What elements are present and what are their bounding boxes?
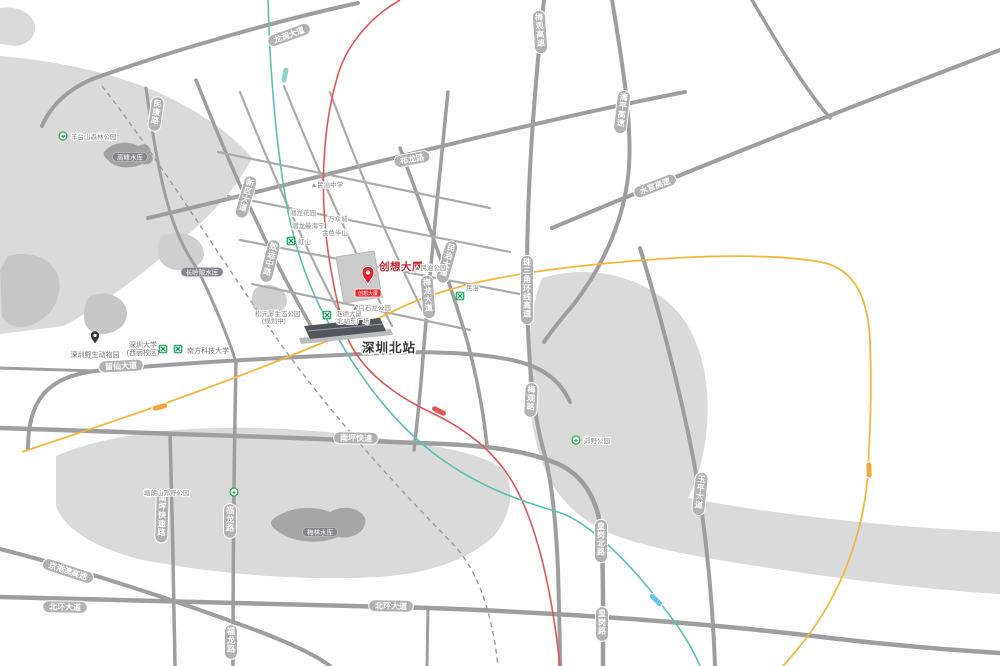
road-label-capsule: 福龙路 [224,504,237,539]
road-label-capsule: 福龙路 [225,625,238,660]
svg-text:深圳野生动物园: 深圳野生动物园 [71,350,120,359]
road-label-capsule: 皇岗北路 [595,519,608,562]
water-label-capsule: 长岭陂水库 [181,267,223,276]
place-label: (西丽校区) [127,348,160,357]
road-label-capsule: 京港澳高速 [41,557,95,585]
location-map: 深圳北站 创想大厦 龙澜大道布龙路清平高速水官高速珠三角环线高速梅观高速梅观路南… [0,0,1000,666]
water-label-capsule: 高峰水库 [112,152,147,161]
water-label-capsule: 梅林水库 [302,527,337,536]
metro-station-icon [174,345,182,353]
svg-text:♣: ♣ [574,438,578,444]
place-label: 南方科技大学 [187,346,229,355]
area-tanglang-mountain [56,428,510,578]
park-poi: ♣郊野公园 [572,436,610,445]
svg-text:汇德大厦: 汇德大厦 [336,309,363,318]
minor-street [218,152,490,208]
place-label: 深圳大学 [129,340,157,349]
metro-station-icon [159,345,167,353]
road-label-capsule: 珠三角环线高速 [521,255,534,324]
svg-text:珠三角环线高速: 珠三角环线高速 [523,257,532,319]
poi-label: 汇德大厦 [336,309,363,318]
road-label-capsule: 皇岗路 [596,607,609,642]
svg-text:万众城: 万众城 [328,215,348,223]
transit-line-badge [151,402,168,412]
svg-text:▲民治公园: ▲民治公园 [414,263,446,272]
transit-line-badge [648,592,664,608]
poi-label: 万众城 [328,215,348,223]
terrain-areas [0,8,1000,594]
svg-text:创想大厦: 创想大厦 [358,290,378,297]
poi-label: 潜龙花园 [290,208,316,217]
poi-label: 松元厦生态公园 [255,309,301,318]
park-label: 塘朗山郊野公园 [144,488,190,497]
svg-text:深圳大学: 深圳大学 [129,340,157,349]
road-liuxian-west-stub [0,368,95,371]
road-label-capsule: 水官高速 [632,172,678,199]
svg-text:▲民治中学: ▲民治中学 [311,180,344,189]
svg-text:梅林水库: 梅林水库 [307,527,334,536]
svg-text:松元厦生态公园: 松元厦生态公园 [255,309,301,318]
svg-text:高峰水库: 高峰水库 [117,152,144,161]
svg-text:(规划中): (规划中) [262,316,286,325]
svg-text:金色半山: 金色半山 [322,228,348,237]
svg-text:皇岗北路: 皇岗北路 [597,521,606,557]
svg-text:♣: ♣ [232,490,236,496]
svg-text:福龙路: 福龙路 [225,505,235,532]
svg-text:北环大道: 北环大道 [375,601,407,612]
road-label-capsule: 北环大道 [43,601,88,614]
svg-text:京港澳高速: 京港澳高速 [47,560,88,582]
poi-label: 民治 [466,283,480,292]
area-corner-northwest [0,8,35,46]
road-label-capsule: 梅龙大道 [420,275,436,319]
park-label: 羊台山森林公园 [71,132,117,141]
poi-label: 金色半山 [322,228,348,237]
road-bottom-center [427,608,428,666]
park-icon: ♣ [59,132,67,140]
metro-station-icon [456,292,464,300]
road-label-capsule: 梅观路 [524,382,539,417]
park-icon: ♣ [230,488,238,496]
transit-line-badge [431,405,448,418]
station-name-label: 深圳北站 [362,340,416,355]
road-shuiguan-expressway [552,50,1000,228]
poi-label: ▲民治公园 [414,263,446,272]
park-icon: ♣ [572,436,580,444]
poi-label: 潜龙曼海宁 [292,221,325,230]
svg-text:红山: 红山 [298,237,311,246]
area-hill-blob-2 [84,294,127,334]
road-top-right-link [752,0,830,118]
svg-text:南方科技大学: 南方科技大学 [187,346,229,355]
road-label-capsule: 留仙大道 [98,359,143,373]
poi-label: 红山 [298,237,311,246]
road-beihuan-avenue [0,597,1000,653]
svg-text:皇岗路: 皇岗路 [598,608,607,635]
svg-text:潜龙花园: 潜龙花园 [290,208,316,217]
transit-line-badge [866,462,873,478]
park-label: 郊野公园 [584,436,610,445]
svg-text:福龙路: 福龙路 [226,626,236,653]
svg-text:♣: ♣ [61,134,65,140]
road-label-capsule: 北环大道 [369,600,414,613]
road-label-capsule: 民治大道 [435,239,459,284]
poi-label: (规划中) [262,316,286,325]
map-canvas: 深圳北站 创想大厦 龙澜大道布龙路清平高速水官高速珠三角环线高速梅观高速梅观路南… [0,0,1000,666]
poi-label: ▲民治中学 [311,180,344,189]
svg-text:留仙大道: 留仙大道 [105,360,137,372]
road-label-capsule: 龙澜大道 [266,22,312,49]
road-label-capsule: 南坪快速 [334,432,379,445]
svg-text:龙澜大道: 龙澜大道 [271,25,305,46]
svg-text:南坪快速: 南坪快速 [340,433,372,444]
svg-text:长岭陂水库: 长岭陂水库 [186,267,219,276]
svg-text:潜龙曼海宁: 潜龙曼海宁 [292,221,325,230]
road-label-capsule: 梅观高速 [532,10,548,54]
project-badge: 创想大厦 [355,289,381,297]
road-label-capsule: 布龙路 [393,150,431,169]
poi-label: 北站东广场 [337,316,370,325]
svg-text:水官高速: 水官高速 [637,175,671,196]
zoo-pin-icon [91,331,100,344]
road-label-capsule: 南坪快速路 [155,491,170,543]
svg-text:北站东广场: 北站东广场 [337,316,370,325]
metro-station-icon [323,311,331,319]
svg-text:(西丽校区): (西丽校区) [127,348,160,357]
svg-text:北环大道: 北环大道 [49,602,81,613]
place-label: 深圳野生动物园 [71,350,120,359]
metro-station-icon [287,237,295,245]
transit-line-badge [281,67,290,84]
svg-text:民治: 民治 [466,283,480,292]
